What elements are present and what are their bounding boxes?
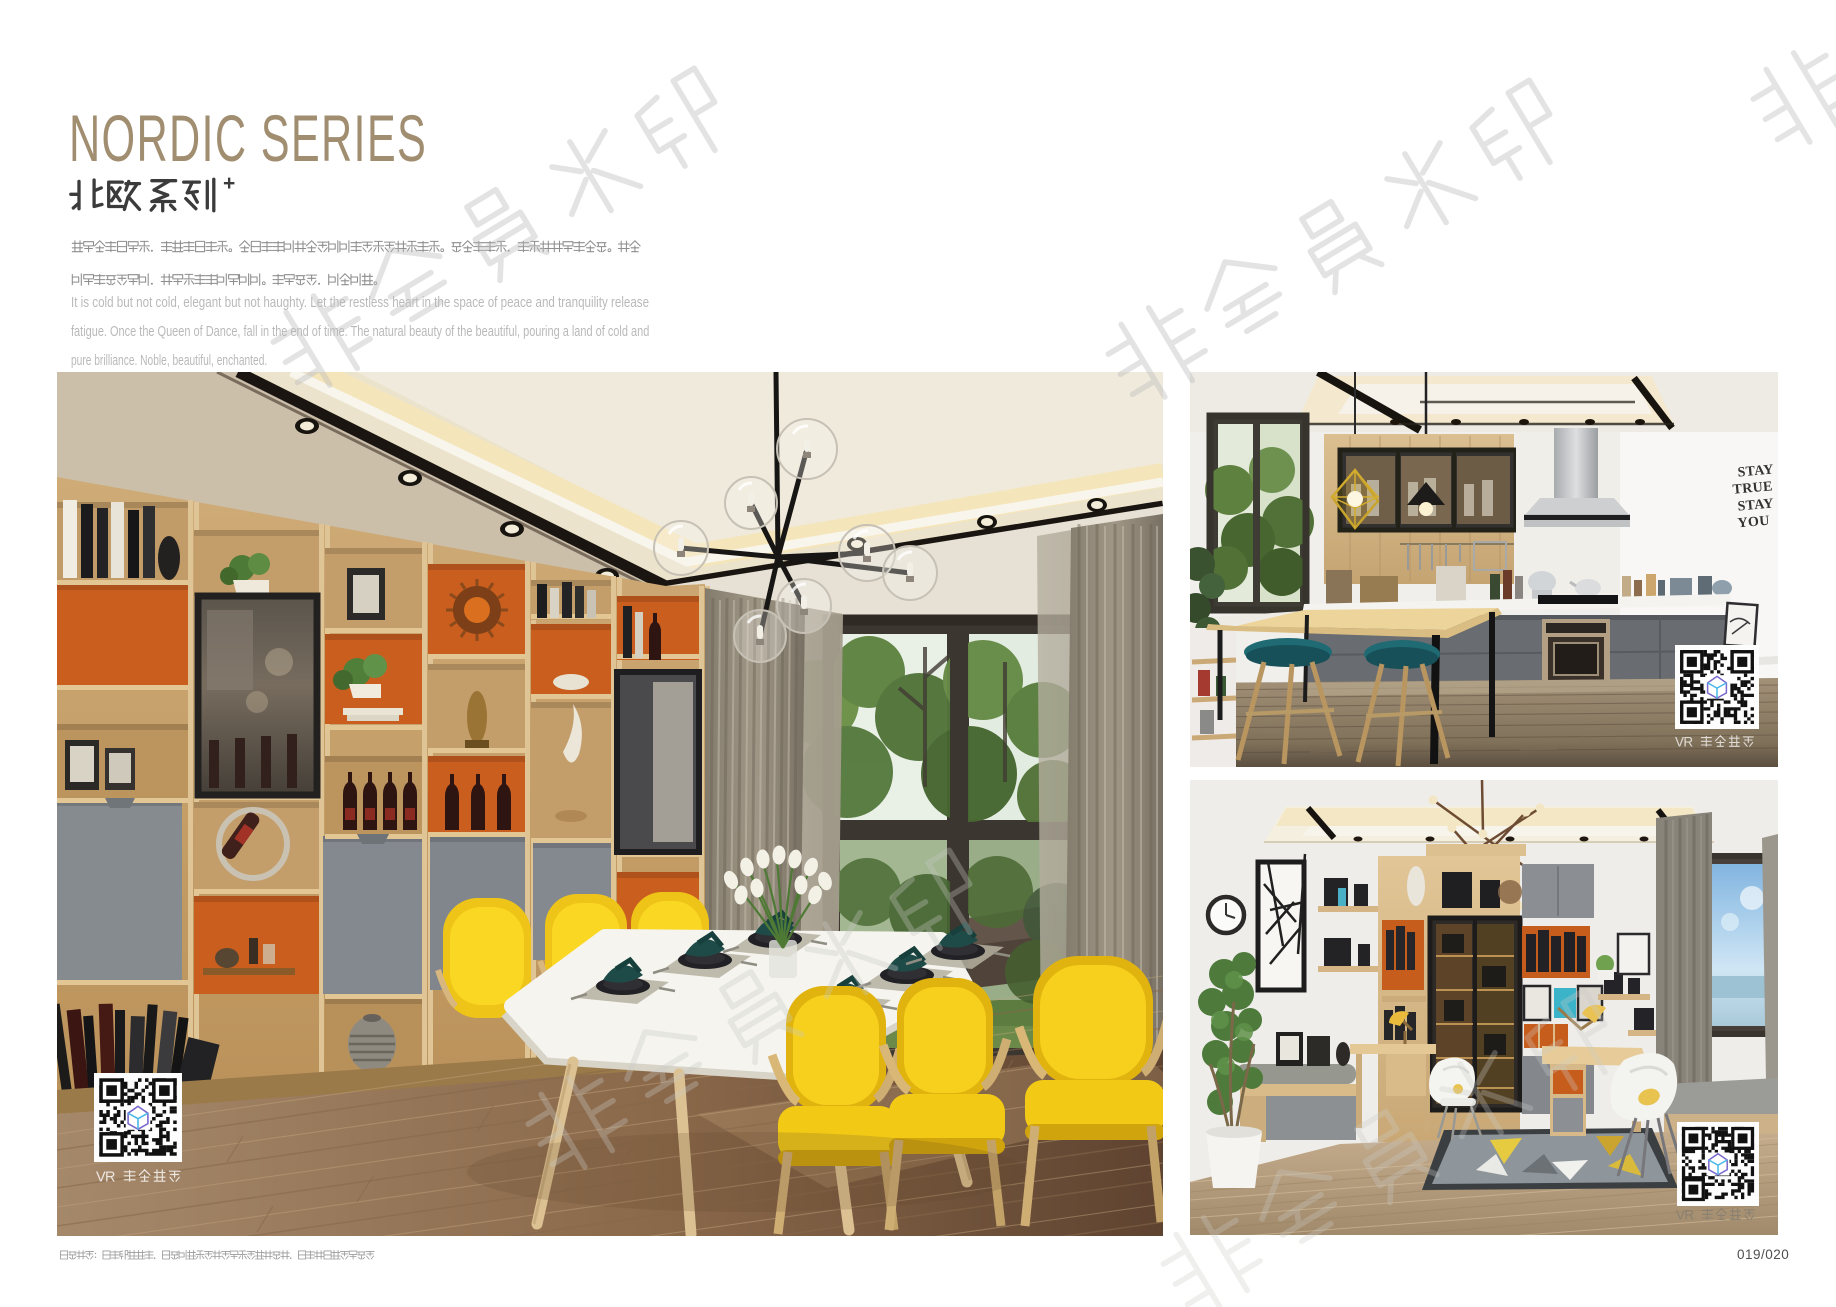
svg-text:R: R (1684, 1207, 1694, 1222)
svg-text:STAY: STAY (1737, 496, 1774, 514)
svg-text:R: R (1683, 734, 1693, 749)
svg-text:YOU: YOU (1737, 514, 1770, 532)
svg-text:STAY: STAY (1737, 462, 1774, 480)
svg-text:R: R (105, 1169, 115, 1185)
